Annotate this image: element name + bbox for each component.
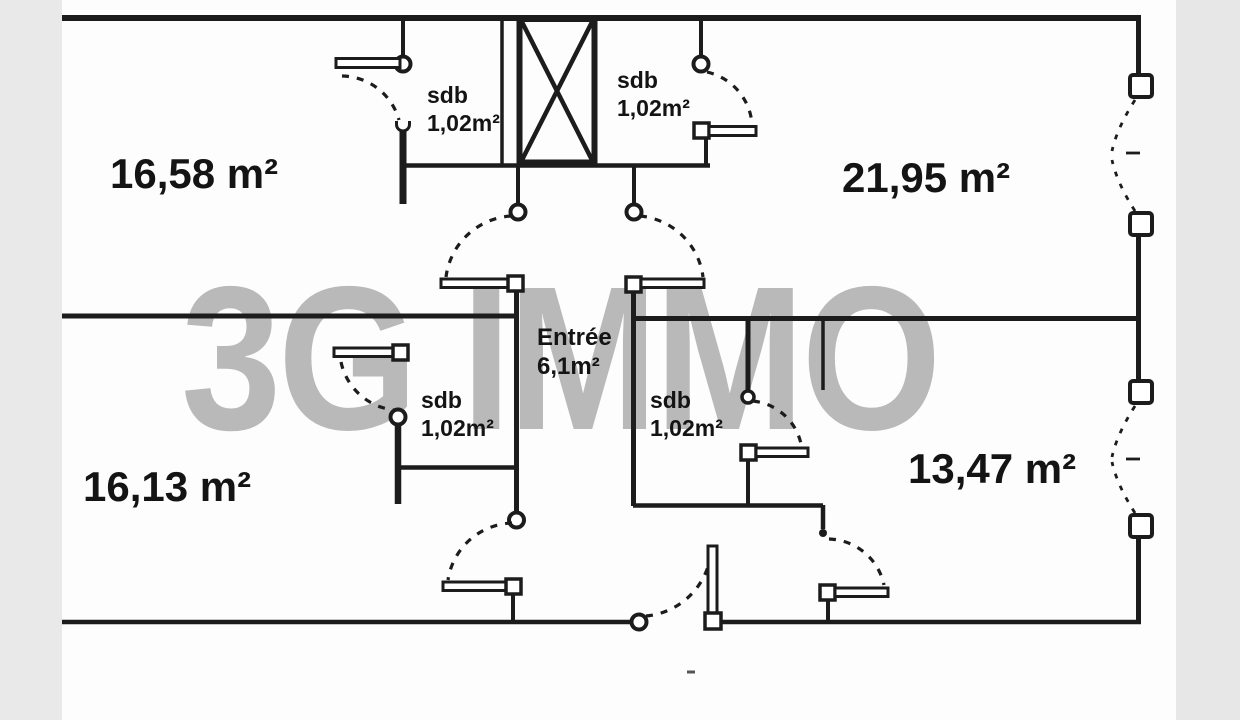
bathroom-label-bottom-left: sdb 1,02m² [421,386,494,442]
window-top-right [1112,75,1152,235]
room-area-bottom-left: 16,13 m² [83,466,251,508]
door-room-top-right [626,166,704,292]
door-main-entrance [632,546,722,630]
door-bathroom-top-left [336,16,411,204]
room-area-bottom-right: 13,47 m² [908,448,1076,490]
bathroom-area: 1,02m² [617,94,690,122]
room-area-top-right: 21,95 m² [842,157,1010,199]
bathroom-name: sdb [650,386,723,414]
bathroom-label-top-right: sdb 1,02m² [617,66,690,122]
room-area-top-left: 16,58 m² [110,153,278,195]
entry-name: Entrée [537,324,612,353]
door-bathroom-bottom-left [334,345,408,504]
window-bottom-right [1112,381,1152,537]
door-bathroom-top-right [694,16,757,164]
door-bathroom-bottom-right [741,391,808,460]
stair-shaft-x [520,19,595,163]
floor-plan: 3G IMMO [0,0,1240,720]
door-room-bottom-left [443,513,524,622]
door-room-top-left [441,166,526,291]
bathroom-label-bottom-right: sdb 1,02m² [650,386,723,442]
bathroom-area: 1,02m² [650,414,723,442]
bathroom-name: sdb [427,81,500,109]
door-room-bottom-right [819,529,888,621]
entry-area: 6,1m² [537,353,612,382]
bathroom-area: 1,02m² [427,109,500,137]
bathroom-name: sdb [617,66,690,94]
bathroom-label-top-left: sdb 1,02m² [427,81,500,137]
bathroom-area: 1,02m² [421,414,494,442]
entry-label: Entrée 6,1m² [537,324,612,382]
bathroom-name: sdb [421,386,494,414]
